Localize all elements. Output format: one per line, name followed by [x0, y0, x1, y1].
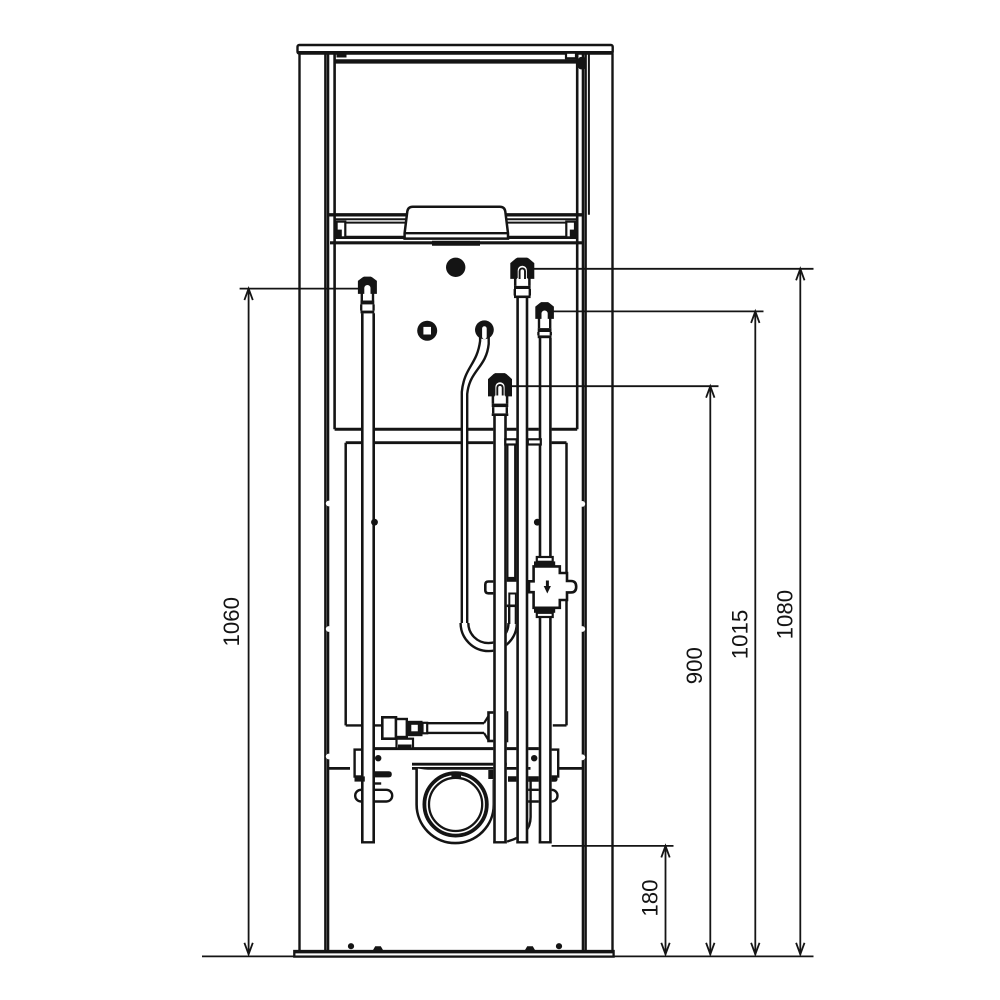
- svg-text:1080: 1080: [772, 590, 797, 640]
- svg-text:180: 180: [638, 879, 663, 916]
- svg-text:900: 900: [682, 647, 707, 684]
- svg-text:1060: 1060: [219, 597, 244, 647]
- svg-text:1015: 1015: [727, 610, 752, 660]
